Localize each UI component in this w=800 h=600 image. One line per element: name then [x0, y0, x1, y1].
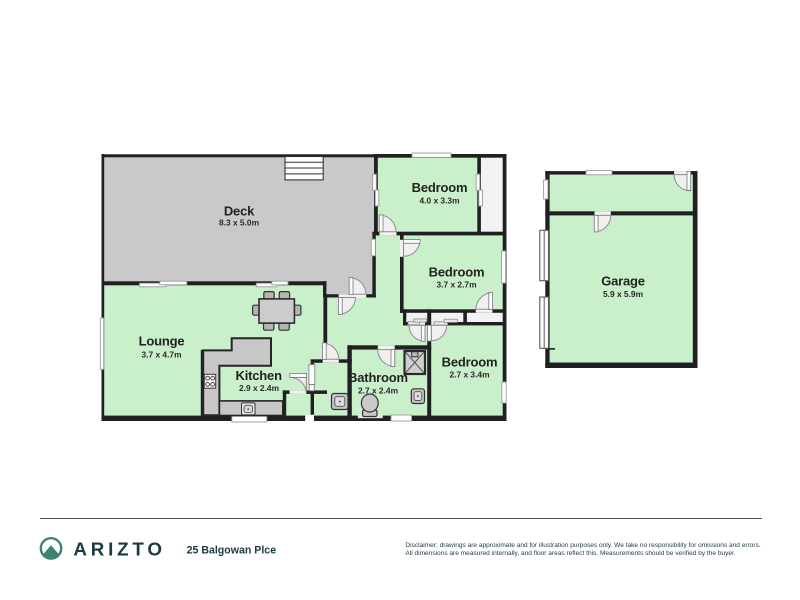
- svg-text:Lounge: Lounge: [139, 334, 185, 349]
- svg-text:Bedroom: Bedroom: [412, 180, 468, 195]
- svg-text:4.0 x 3.3m: 4.0 x 3.3m: [419, 196, 459, 206]
- svg-text:2.7 x 3.4m: 2.7 x 3.4m: [449, 370, 489, 380]
- svg-text:Bedroom: Bedroom: [442, 355, 498, 370]
- svg-text:Bedroom: Bedroom: [429, 265, 485, 280]
- svg-text:3.7 x 2.7m: 3.7 x 2.7m: [436, 280, 476, 290]
- svg-text:All dimensions are measured in: All dimensions are measured internally, …: [405, 550, 735, 557]
- svg-text:5.9 x 5.9m: 5.9 x 5.9m: [603, 289, 643, 299]
- svg-text:2.7 x 2.4m: 2.7 x 2.4m: [358, 386, 398, 396]
- svg-text:Deck: Deck: [224, 204, 255, 219]
- svg-text:2.9 x 2.4m: 2.9 x 2.4m: [239, 383, 279, 393]
- svg-text:Bathroom: Bathroom: [348, 370, 408, 385]
- svg-text:ARIZTO: ARIZTO: [73, 538, 165, 559]
- svg-text:Garage: Garage: [601, 274, 645, 289]
- svg-text:25 Balgowan Plce: 25 Balgowan Plce: [187, 544, 277, 556]
- svg-text:Disclaimer: drawings are appro: Disclaimer: drawings are approximate and…: [405, 542, 760, 549]
- svg-text:3.7 x 4.7m: 3.7 x 4.7m: [141, 350, 181, 360]
- svg-text:Kitchen: Kitchen: [236, 368, 283, 383]
- svg-text:8.3 x 5.0m: 8.3 x 5.0m: [219, 218, 259, 228]
